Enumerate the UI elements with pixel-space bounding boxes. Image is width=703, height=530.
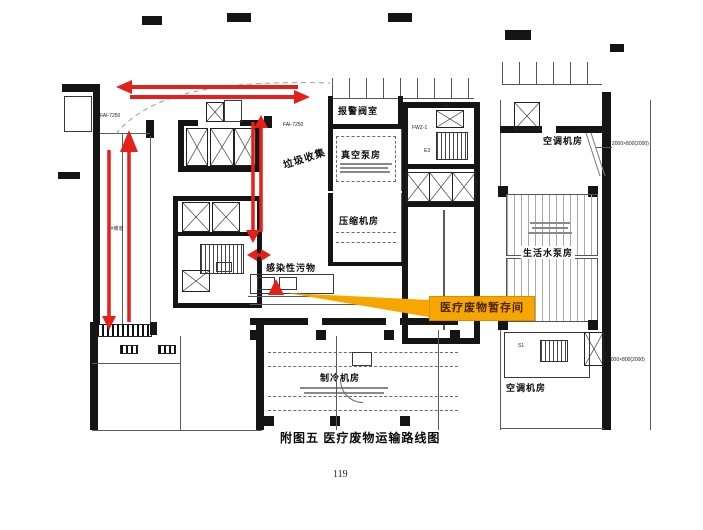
- elevator-symbol: [182, 202, 210, 232]
- partition-line: [500, 100, 501, 190]
- wall: [93, 172, 100, 324]
- elevator-symbol: [429, 172, 453, 202]
- column: [450, 330, 460, 340]
- wall: [178, 166, 262, 172]
- elevator-symbol: [212, 202, 240, 232]
- fixture-hatch: [158, 345, 176, 354]
- page-number: 119: [333, 469, 348, 480]
- ramp-end-hatch: [96, 324, 152, 337]
- column: [588, 320, 598, 330]
- partition-line: [438, 330, 439, 430]
- wall: [173, 303, 262, 308]
- wall: [328, 262, 403, 266]
- wall: [142, 16, 162, 25]
- wall: [93, 84, 100, 180]
- wall: [256, 322, 264, 430]
- greek-text-line: [340, 163, 392, 165]
- wall: [402, 202, 480, 207]
- partition-line: [180, 336, 181, 430]
- arrowhead-right: [294, 90, 310, 104]
- shaft-symbol: [514, 102, 540, 130]
- wall: [402, 338, 480, 344]
- wall: [505, 30, 531, 40]
- wall: [322, 318, 386, 325]
- wall: [402, 164, 480, 169]
- elevator-symbol: [234, 128, 256, 166]
- wall: [173, 232, 262, 236]
- wall: [610, 44, 624, 52]
- wall: [264, 116, 272, 128]
- floor-plan-page: 1#坡道 FAI-7250 感染性污物 报警阀室 真空泵房 FAI-7250 垃…: [0, 0, 703, 530]
- shaft-symbol: [584, 332, 604, 366]
- shaft-symbol: [182, 270, 210, 292]
- dashed-line: [268, 410, 458, 411]
- dashed-line: [268, 396, 458, 397]
- room-label-ac-top: 空调机房: [543, 134, 583, 147]
- room-label-water-pump: 生活水泵房: [521, 246, 575, 259]
- room-label-compressor: 压缩机房: [339, 214, 379, 227]
- greek-text-line: [530, 222, 570, 224]
- wall: [256, 120, 262, 172]
- wall: [328, 193, 333, 265]
- column: [330, 416, 340, 426]
- elevator-symbol: [406, 172, 430, 202]
- duct-diagonal-line: [586, 133, 600, 176]
- annotation-s1: S1: [518, 344, 524, 349]
- ramp-top-line: [100, 133, 150, 134]
- door-swing-arc: [340, 380, 363, 403]
- room-label-alarm-valve: 报警阀室: [338, 104, 378, 117]
- wall: [556, 126, 602, 133]
- greek-text-line: [340, 167, 388, 169]
- ramp-label: 1#坡道: [108, 227, 124, 232]
- figure-caption: 附图五 医疗废物运输路线图: [280, 429, 440, 446]
- arrowhead-left: [247, 249, 257, 261]
- wall: [90, 322, 98, 430]
- partition-line: [92, 363, 180, 364]
- greek-text-line: [532, 227, 568, 229]
- fixture-outline: [216, 262, 232, 272]
- annotation-dim-top: 2000×800(2000): [612, 142, 649, 147]
- fixture-outline: [279, 277, 297, 290]
- column: [150, 322, 157, 335]
- medical-waste-storage-callout: 医疗废物暂存间: [429, 296, 535, 321]
- column: [384, 330, 394, 340]
- dashed-line: [336, 242, 396, 243]
- wall: [178, 120, 184, 172]
- room-label-garbage-collection: 垃圾收集: [281, 144, 327, 172]
- elevator-symbol: [210, 128, 234, 166]
- wall: [173, 196, 262, 201]
- greek-text-line: [528, 232, 572, 234]
- annotation-fwz-right: FWZ-1: [412, 126, 427, 131]
- annotation-443: 443: [443, 104, 451, 109]
- wall: [388, 13, 412, 22]
- partition-line: [336, 336, 337, 430]
- small-room-outline: [64, 96, 92, 132]
- wall: [173, 196, 178, 308]
- window-ticks: [332, 78, 474, 99]
- boundary-line: [650, 100, 651, 430]
- arrowhead-right: [261, 249, 271, 261]
- wall: [58, 172, 80, 179]
- column: [316, 330, 326, 340]
- partition-line: [248, 296, 334, 297]
- stair-symbol: [436, 132, 468, 160]
- window-ticks: [502, 62, 602, 85]
- fixture-hatch: [120, 345, 138, 354]
- wall: [402, 102, 408, 344]
- greek-text-line: [340, 171, 390, 173]
- elevator-symbol: [452, 172, 476, 202]
- room-label-vacuum-pump: 真空泵房: [341, 148, 381, 161]
- room-label-ac-bottom: 空调机房: [506, 381, 546, 394]
- wall: [328, 129, 333, 191]
- stair-symbol: [540, 340, 568, 362]
- dashed-line: [268, 366, 458, 367]
- annotation-fai-center: FAI-7250: [283, 123, 303, 128]
- partition-line: [500, 330, 501, 430]
- wall: [227, 13, 251, 22]
- leader-line: [596, 147, 612, 148]
- annotation-fai-left: FAI-7250: [100, 114, 120, 119]
- column: [400, 416, 410, 426]
- column: [498, 320, 508, 330]
- fixture-outline: [352, 352, 372, 366]
- ramp-edge-line: [150, 136, 151, 324]
- dashed-line: [336, 232, 396, 233]
- wall: [402, 102, 480, 108]
- partition-line: [500, 428, 604, 429]
- annotation-dim-bottom: 2000×800(2000): [608, 358, 645, 363]
- shaft-symbol: [206, 102, 224, 122]
- shaft-symbol: [186, 128, 208, 166]
- arrowhead-left: [116, 80, 132, 94]
- room-label-infectious-waste: 感染性污物: [266, 261, 316, 274]
- wall: [602, 92, 611, 430]
- annotation-e3: E3: [424, 149, 430, 154]
- small-room-outline: [224, 100, 242, 122]
- fixture-outline: [257, 277, 275, 290]
- column: [264, 416, 274, 426]
- shaft-symbol: [436, 110, 464, 128]
- partition-line: [92, 430, 262, 431]
